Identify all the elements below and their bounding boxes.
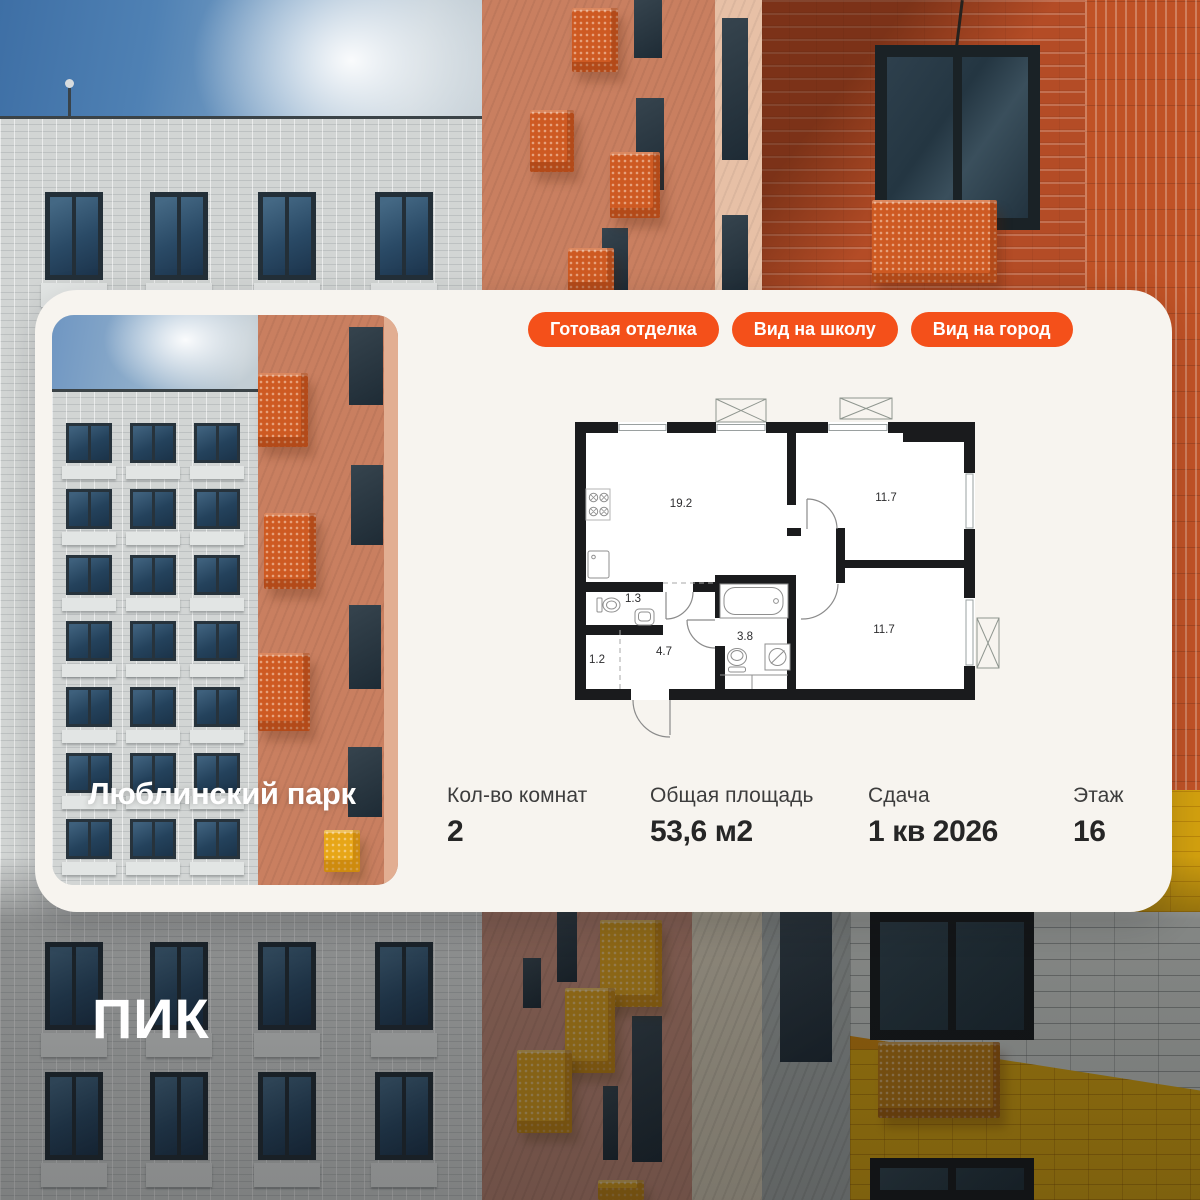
stat-value: 16 bbox=[1073, 815, 1124, 849]
window-decor bbox=[258, 942, 316, 1030]
window-decor bbox=[150, 1072, 208, 1160]
window-sill bbox=[126, 664, 180, 677]
window-sill bbox=[254, 1163, 320, 1187]
window-decor bbox=[194, 423, 240, 463]
balcony-mesh-box bbox=[598, 1180, 644, 1200]
balcony-mesh-box bbox=[878, 1042, 1000, 1118]
wall-strip bbox=[384, 315, 398, 885]
window-decor bbox=[258, 192, 316, 280]
balcony-mesh-box bbox=[568, 248, 614, 292]
stat-label: Этаж bbox=[1073, 784, 1124, 808]
stat-label: Сдача bbox=[868, 784, 998, 808]
window-decor bbox=[66, 819, 112, 859]
window-decor bbox=[258, 1072, 316, 1160]
balcony-mesh-box bbox=[565, 988, 615, 1073]
bathtub bbox=[720, 584, 788, 618]
window-sill bbox=[126, 862, 180, 875]
window-decor bbox=[130, 555, 176, 595]
window-rows bbox=[0, 924, 482, 1200]
window-sill bbox=[62, 466, 116, 479]
stat-floor: Этаж 16 bbox=[1073, 784, 1124, 849]
window-decor bbox=[557, 912, 577, 982]
window-decor bbox=[632, 1016, 662, 1162]
listing-card-creative: Люблинский парк Готовая отделка Вид на ш… bbox=[0, 0, 1200, 1200]
window-sill bbox=[190, 598, 244, 611]
bg-photo-bottom-right bbox=[762, 912, 1200, 1200]
stat-delivery: Сдача 1 кв 2026 bbox=[868, 784, 998, 849]
window-decor bbox=[45, 1072, 103, 1160]
window-sill bbox=[190, 730, 244, 743]
stat-value: 2 bbox=[447, 815, 587, 849]
balcony-mesh-box bbox=[258, 653, 310, 731]
window-sill bbox=[254, 1033, 320, 1057]
window-decor bbox=[66, 555, 112, 595]
balcony-mesh-box bbox=[258, 373, 308, 447]
window-row bbox=[0, 0, 482, 320]
window-decor bbox=[194, 555, 240, 595]
window-sill bbox=[126, 466, 180, 479]
floorplan: 19.2 11.7 1.3 3.8 4.7 1.2 11.7 bbox=[570, 394, 1004, 740]
wall-strip bbox=[692, 912, 762, 1200]
window-decor bbox=[349, 605, 381, 689]
window-sill bbox=[126, 532, 180, 545]
stat-value: 1 кв 2026 bbox=[868, 815, 998, 849]
window-decor bbox=[194, 687, 240, 727]
kitchen-sink bbox=[588, 551, 609, 578]
window-decor bbox=[130, 687, 176, 727]
apartment-listing-card[interactable]: Люблинский парк Готовая отделка Вид на ш… bbox=[35, 290, 1172, 912]
room-area-label: 11.7 bbox=[875, 492, 897, 504]
window-decor bbox=[722, 18, 748, 160]
balcony-mesh-box bbox=[324, 830, 360, 872]
window-decor bbox=[66, 489, 112, 529]
window-decor bbox=[66, 687, 112, 727]
window-decor bbox=[603, 1086, 618, 1160]
stat-area: Общая площадь 53,6 м2 bbox=[650, 784, 814, 849]
window-sill bbox=[371, 1033, 437, 1057]
balcony-mesh-box bbox=[610, 152, 660, 218]
window-decor bbox=[870, 1158, 1034, 1200]
window-sill bbox=[62, 598, 116, 611]
washing-machine bbox=[765, 644, 790, 670]
wc-toilet bbox=[597, 598, 620, 612]
window-decor bbox=[66, 621, 112, 661]
stat-label: Общая площадь bbox=[650, 784, 814, 808]
window-sill bbox=[146, 1163, 212, 1187]
balcony-mesh-box bbox=[264, 513, 316, 589]
window-decor bbox=[45, 192, 103, 280]
room-area-label: 11.7 bbox=[873, 624, 895, 636]
window-sill bbox=[62, 862, 116, 875]
stat-rooms: Кол-во комнат 2 bbox=[447, 784, 587, 849]
window-sill bbox=[190, 664, 244, 677]
window-sill bbox=[62, 664, 116, 677]
window-decor bbox=[634, 0, 662, 58]
window-decor bbox=[375, 192, 433, 280]
project-photo: Люблинский парк bbox=[52, 315, 398, 885]
window-decor bbox=[194, 621, 240, 661]
balcony-mesh-box bbox=[872, 200, 997, 283]
window-sill bbox=[62, 532, 116, 545]
window-sill bbox=[190, 862, 244, 875]
window-sill bbox=[371, 1163, 437, 1187]
bg-photo-bottom-middle bbox=[482, 912, 762, 1200]
window-decor bbox=[194, 819, 240, 859]
window-decor bbox=[375, 1072, 433, 1160]
project-title: Люблинский парк bbox=[88, 776, 356, 812]
window-decor bbox=[375, 942, 433, 1030]
window-sill bbox=[62, 730, 116, 743]
room-area-label: 4.7 bbox=[656, 646, 672, 658]
window-decor bbox=[130, 423, 176, 463]
window-sill bbox=[41, 1163, 107, 1187]
room-area-label: 3.8 bbox=[737, 631, 753, 643]
balcony-mesh-box bbox=[572, 8, 618, 72]
window-decor bbox=[130, 819, 176, 859]
bg-photo-top-middle bbox=[482, 0, 762, 292]
badge-city-view[interactable]: Вид на город bbox=[911, 312, 1073, 347]
window-sill bbox=[126, 598, 180, 611]
stat-label: Кол-во комнат bbox=[447, 784, 587, 808]
window-sill bbox=[190, 466, 244, 479]
window-decor bbox=[351, 465, 383, 545]
window-sill bbox=[126, 730, 180, 743]
window-decor bbox=[130, 621, 176, 661]
room-area-label: 1.2 bbox=[589, 654, 605, 666]
bath-toilet bbox=[728, 649, 747, 673]
balcony-mesh-box bbox=[517, 1050, 572, 1133]
window-decor bbox=[780, 912, 832, 1062]
window-decor bbox=[722, 215, 748, 292]
pik-logo: ПИК bbox=[92, 986, 210, 1051]
room-area-label: 1.3 bbox=[625, 593, 641, 605]
room-area-label: 19.2 bbox=[670, 498, 692, 510]
stat-value: 53,6 м2 bbox=[650, 815, 814, 849]
window-decor bbox=[349, 327, 383, 405]
window-decor bbox=[130, 489, 176, 529]
window-decor bbox=[66, 423, 112, 463]
window-decor bbox=[870, 912, 1034, 1040]
window-sill bbox=[190, 532, 244, 545]
badge-school-view[interactable]: Вид на школу bbox=[732, 312, 898, 347]
balcony-mesh-box bbox=[530, 110, 574, 172]
window-decor bbox=[523, 958, 541, 1008]
window-decor bbox=[194, 489, 240, 529]
window-decor bbox=[150, 192, 208, 280]
badge-finish[interactable]: Готовая отделка bbox=[528, 312, 719, 347]
feature-badges: Готовая отделка Вид на школу Вид на горо… bbox=[528, 312, 1073, 347]
